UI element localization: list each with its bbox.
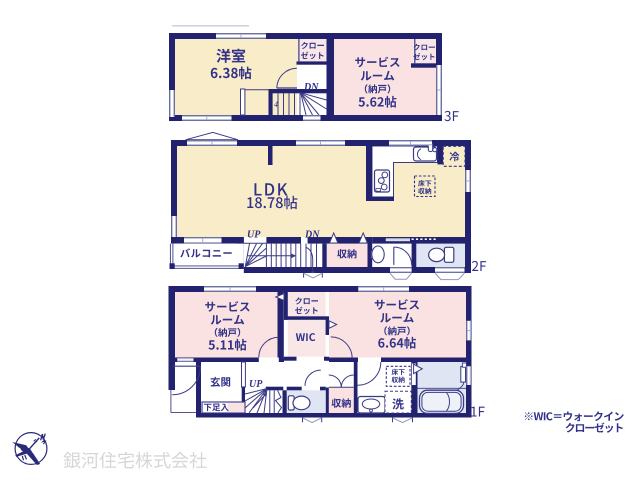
svg-text:UP: UP	[247, 230, 261, 241]
svg-text:DN: DN	[303, 82, 319, 93]
svg-text:4: 4	[274, 100, 278, 109]
svg-text:UP: UP	[249, 379, 263, 390]
svg-text:DN: DN	[304, 230, 320, 241]
